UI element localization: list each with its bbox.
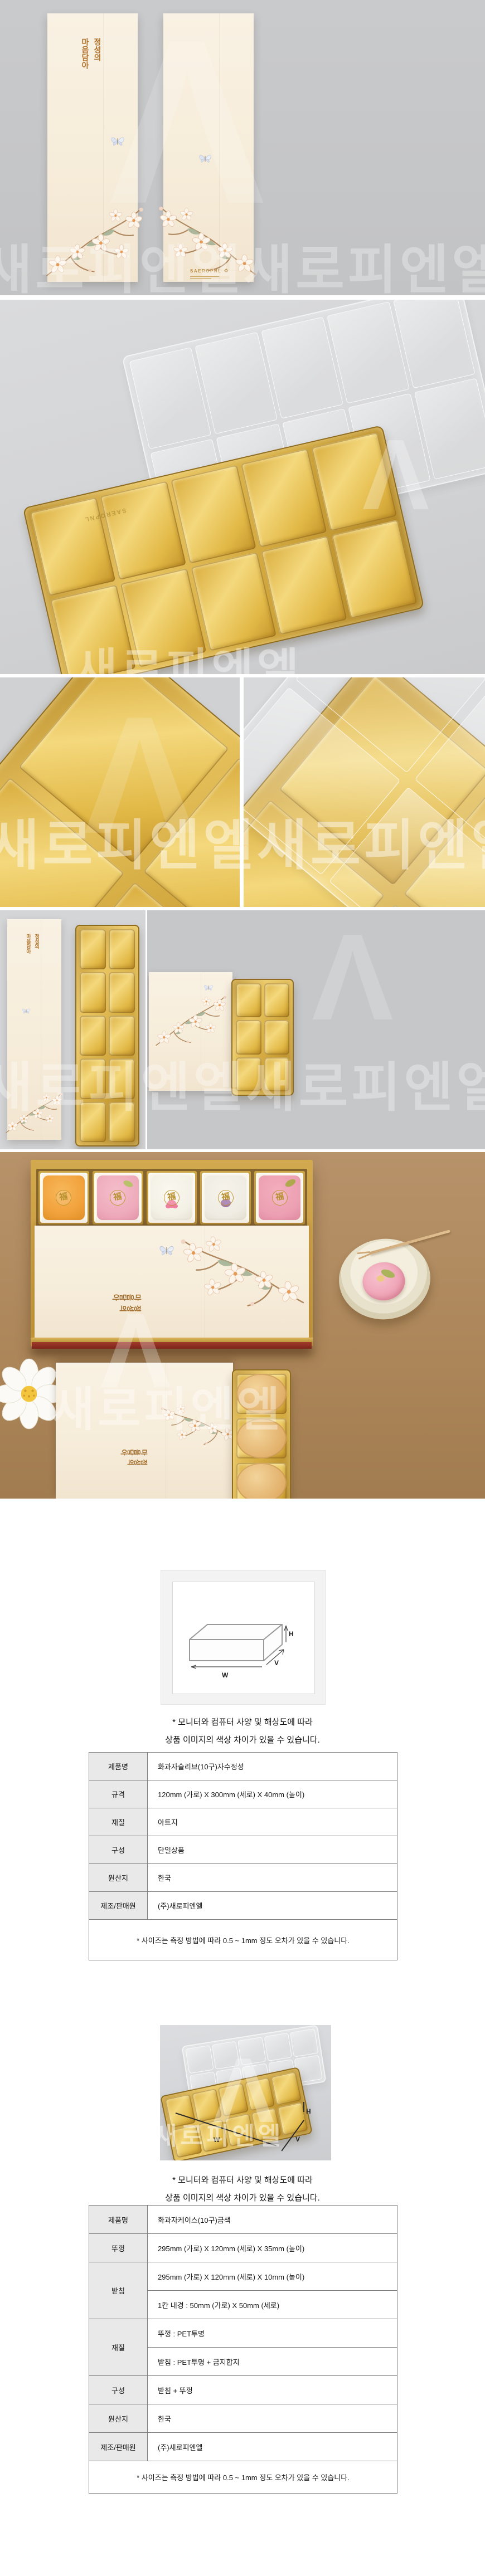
box-gold-rim [31,1338,313,1342]
spec-value: (주)새로피엔엘 [148,1892,397,1920]
lid-cell [237,2037,266,2065]
photo-tray-and-lid: SAEROPNL Λ 새로피엔엘 [0,300,485,674]
photo-box-tray-slide: Λ [147,910,485,1149]
fortune-mark: 福 [271,1189,289,1207]
table-row: 재질 뚜껑 : PET투명 [89,2319,397,2348]
table-footer-row: * 사이즈는 측정 방법에 따라 0.5 ~ 1mm 정도 오차가 있을 수 있… [89,1920,397,1960]
lid-cell [185,2045,214,2074]
brand-logo-text: SAEROPNL [190,269,221,274]
width-label: W [214,2136,220,2144]
fortune-mark: 福 [217,1189,235,1207]
tray-cell [236,983,261,1017]
spec-label: 구성 [89,2376,148,2404]
sweet-cell-white: 福 [147,1171,197,1224]
table-row: 원산지 한국 [89,1864,397,1892]
cookie [236,1374,287,1414]
tray-cell [80,1016,106,1056]
sleeve-message-col1: 정성의 [92,38,103,121]
table-footer-row: * 사이즈는 측정 방법에 따라 0.5 ~ 1mm 정도 오차가 있을 수 있… [89,2461,397,2494]
spec-label: 제조/판매원 [89,1892,148,1920]
spec-value: 아트지 [148,1808,397,1836]
sleeve-message-col1: 정성의 [113,1303,142,1314]
spec-label: 원산지 [89,2404,148,2433]
tray-cell [264,983,290,1017]
tray-cell [241,448,327,548]
tray-cell [236,1020,261,1054]
spec-label: 재질 [89,2319,148,2376]
sleeve-message-col1: 정성의 [33,934,41,984]
spec-value: (주)새로피엔엘 [148,2433,397,2461]
width-label: W [222,1671,228,1679]
tray-cell [120,568,206,667]
spec-value: 295mm (가로) X 120mm (세로) X 35mm (높이) [148,2234,397,2262]
butterfly-icon [110,135,125,148]
sweet-mochi: 福 [259,1175,300,1220]
table-row: 재질 아트지 [89,1808,397,1836]
spec-label: 재질 [89,1808,148,1836]
sleeve-message-col2: 마음담아 [80,38,91,121]
sleeve-message: 정성의 마음담아 [24,934,42,984]
sleeve-back-logo: SAEROPNL♻ [190,265,229,279]
photo-lifestyle: 福 福 福 福 福 정성의 마음담아 [0,1152,485,1499]
product-detail-page: Λ 정성의 마음담아 SAEROPNL♻ 새로피엔엘새로피엔엘 [0,0,485,2576]
table-row: 규격 120mm (가로) X 300mm (세로) X 40mm (높이) [89,1780,397,1808]
spec-value: 120mm (가로) X 300mm (세로) X 40mm (높이) [148,1780,397,1808]
spec-label: 원산지 [89,1864,148,1892]
tray-cell [164,2094,196,2128]
monitor-note-line2: 상품 이미지의 색상 차이가 있을 수 있습니다. [0,1734,485,1745]
butterfly-icon [22,1007,31,1015]
paper-sleeve-front: 정성의 마음담아 [7,919,61,1140]
table-row: 구성 단일상품 [89,1836,397,1864]
depth-label: V [274,1659,279,1667]
sweets-row: 福 福 福 福 福 [36,1169,307,1227]
spec-value: 뚜껑 : PET투명 [148,2319,397,2348]
size-tolerance-note: * 사이즈는 측정 방법에 따라 0.5 ~ 1mm 정도 오차가 있을 수 있… [89,2461,397,2494]
spec-value: 받침 : PET투명 + 금지합지 [148,2348,397,2376]
cookie [236,1463,287,1499]
spec-value: 한국 [148,2404,397,2433]
sleeve-message-col1: 정성의 [121,1458,148,1467]
sleeve-on-box: 정성의 마음담아 [35,1226,309,1338]
box-wireframe [173,1582,314,1694]
spec-label: 규격 [89,1780,148,1808]
sweet-cell-orange: 福 [38,1171,89,1224]
butterfly-icon [158,1243,175,1258]
lid-cell [264,2033,292,2061]
table-row: 제품명 화과자케이스(10구)금색 [89,2206,397,2234]
spec-label: 제품명 [89,2206,148,2234]
spec-label: 받침 [89,2262,148,2319]
tray-cell [80,929,106,969]
size-tolerance-note: * 사이즈는 측정 방법에 따라 0.5 ~ 1mm 정도 오차가 있을 수 있… [89,1920,397,1960]
recycle-icon: ♻ [224,268,228,274]
magnolia-branch-art [153,989,229,1050]
butterfly-icon [203,983,214,992]
tray-cell [100,481,186,580]
monitor-note-line1: * 모니터와 컴퓨터 사양 및 해상도에 따라 [0,1716,485,1728]
gold-tray-10 [23,425,425,674]
nut-garnish [376,1275,385,1282]
spec-label: 뚜껑 [89,2234,148,2262]
photo-sleeves-front-back: Λ 정성의 마음담아 SAEROPNL♻ 새로피엔엘새로피엔엘 [0,0,485,295]
monitor-note-line2: 상품 이미지의 색상 차이가 있을 수 있습니다. [0,2192,485,2203]
tray-cell [171,465,256,564]
tray-cell [109,1102,135,1142]
spec-table-sleeve: 제품명 화과자슬리브(10구)자수정성 규격 120mm (가로) X 300m… [89,1752,397,1960]
table-row: 받침 295mm (가로) X 120mm (세로) X 10mm (높이) [89,2262,397,2291]
butterfly-icon [198,153,212,165]
sleeve-message: 정성의 마음담아 [79,38,104,121]
table-row: 제조/판매원 (주)새로피엔엘 [89,2433,397,2461]
tray-cell [191,2089,222,2123]
gift-box-open: 福 福 福 福 福 정성의 마음담아 [31,1160,313,1346]
tray-cell [236,1374,287,1414]
spec-value: 1칸 내경 : 50mm (가로) X 50mm (세로) [148,2291,397,2319]
dimension-diagram: W V H [161,1570,326,1705]
height-dimension-line [303,2102,304,2112]
tray-cell [244,2077,275,2111]
sweet-cell-rose: 福 [254,1171,305,1224]
tray-cell [191,552,277,651]
sweet-mochi: 福 [205,1175,246,1220]
sweet-mochi: 福 [43,1175,85,1220]
tray-cell [109,972,135,1012]
photo-sleeve-and-tray: 정성의 마음담아 [0,910,145,1149]
height-label: H [306,2107,311,2115]
sleeve-message-rotated: 정성의 마음담아 [121,1447,148,1468]
spec-label: 구성 [89,1836,148,1864]
sleeve-message-rotated: 정성의 마음담아 [113,1291,142,1314]
tray-cell [264,1020,290,1054]
tray-cell [109,929,135,969]
depth-label: V [295,2135,300,2143]
spec-table-case: 제품명 화과자케이스(10구)금색 뚜껑 295mm (가로) X 120mm … [89,2205,397,2494]
magnolia-branch-art [171,1214,314,1324]
sweet-cell-pink: 福 [93,1171,143,1224]
sleeve-message-col2: 마음담아 [121,1448,148,1457]
dimension-diagram-panel: W V H [172,1582,315,1694]
address-line [190,278,211,279]
spec-label: 제품명 [89,1753,148,1780]
brand-logo-watermark: Λ [312,916,394,1038]
photo-tray-lid-closeup [244,677,485,907]
tray-cell [50,584,136,674]
gold-tray-macro [0,677,240,907]
tray-cell [171,2124,202,2158]
second-gift-box: 정성의 마음담아 [56,1362,282,1499]
tray-cell [80,1058,106,1099]
dessert-plate [335,1235,434,1324]
bamboo-fork [369,1230,450,1255]
sweet-mochi: 福 [97,1175,139,1220]
tray-cell [331,520,417,619]
fortune-mark: 福 [55,1189,73,1207]
tray-cell [251,2107,282,2141]
sleeve-box-top [149,972,232,1091]
spec-value: 단일상품 [148,1836,397,1864]
fortune-mark: 福 [163,1189,181,1207]
spec-value: 화과자슬리브(10구)자수정성 [148,1753,397,1780]
tray-cell [217,2082,249,2116]
lid-cell [211,2041,240,2070]
tray-cell [261,536,347,635]
height-label: H [289,1630,294,1638]
tray-cell [264,1057,290,1091]
spec-value: 받침 + 뚜껑 [148,2376,397,2404]
address-line [190,276,219,277]
magnolia-branch-art [157,1383,241,1463]
cookie [236,1418,287,1458]
table-row: 제조/판매원 (주)새로피엔엘 [89,1892,397,1920]
tray-cell [236,1057,261,1091]
gold-tray-10-vertical [75,925,139,1146]
sweet-cell-white-purple: 福 [200,1171,251,1224]
table-row: 제품명 화과자슬리브(10구)자수정성 [89,1753,397,1780]
photo-tray-closeup: Λ [0,677,240,907]
tray-cell [80,972,106,1012]
photo-case-dimensions: W V H Λ 새로피엔엘 [160,2025,331,2160]
gold-tray-sliding-out [231,979,294,1096]
gold-tray-with-cookies [232,1369,291,1499]
tray-cell [80,1102,106,1142]
sleeve-message-col2: 마음담아 [113,1292,142,1302]
paper-sleeve-front: 정성의 마음담아 [47,13,138,282]
magnolia-branch-art [4,1086,64,1138]
sleeve-message-col2: 마음담아 [25,934,32,984]
spec-value: 화과자케이스(10구)금색 [148,2206,397,2234]
paper-sleeve-back: SAEROPNL♻ [163,13,254,282]
magnolia-branch-art [43,198,146,282]
spec-value: 295mm (가로) X 120mm (세로) X 10mm (높이) [148,2262,397,2291]
tray-cell [236,1463,287,1499]
lid-cell [290,2028,318,2057]
tray-cell [311,432,397,531]
table-row: 뚜껑 295mm (가로) X 120mm (세로) X 35mm (높이) [89,2234,397,2262]
table-row: 구성 받침 + 뚜껑 [89,2376,397,2404]
tray-cell [271,2071,302,2105]
tray-cell [109,1016,135,1056]
monitor-note-line1: * 모니터와 컴퓨터 사양 및 해상도에 따라 [0,2174,485,2185]
gold-tray-10 [160,2067,313,2160]
sleeve-on-box: 정성의 마음담아 [56,1363,233,1499]
spec-label: 제조/판매원 [89,2433,148,2461]
spec-value: 한국 [148,1864,397,1892]
tray-cell [236,1418,287,1458]
tray-cell [109,1058,135,1099]
fortune-mark: 福 [109,1189,127,1207]
sweet-mochi: 福 [151,1175,193,1220]
table-row: 원산지 한국 [89,2404,397,2433]
box-red-base [32,1342,312,1349]
pink-mochi [361,1260,407,1302]
